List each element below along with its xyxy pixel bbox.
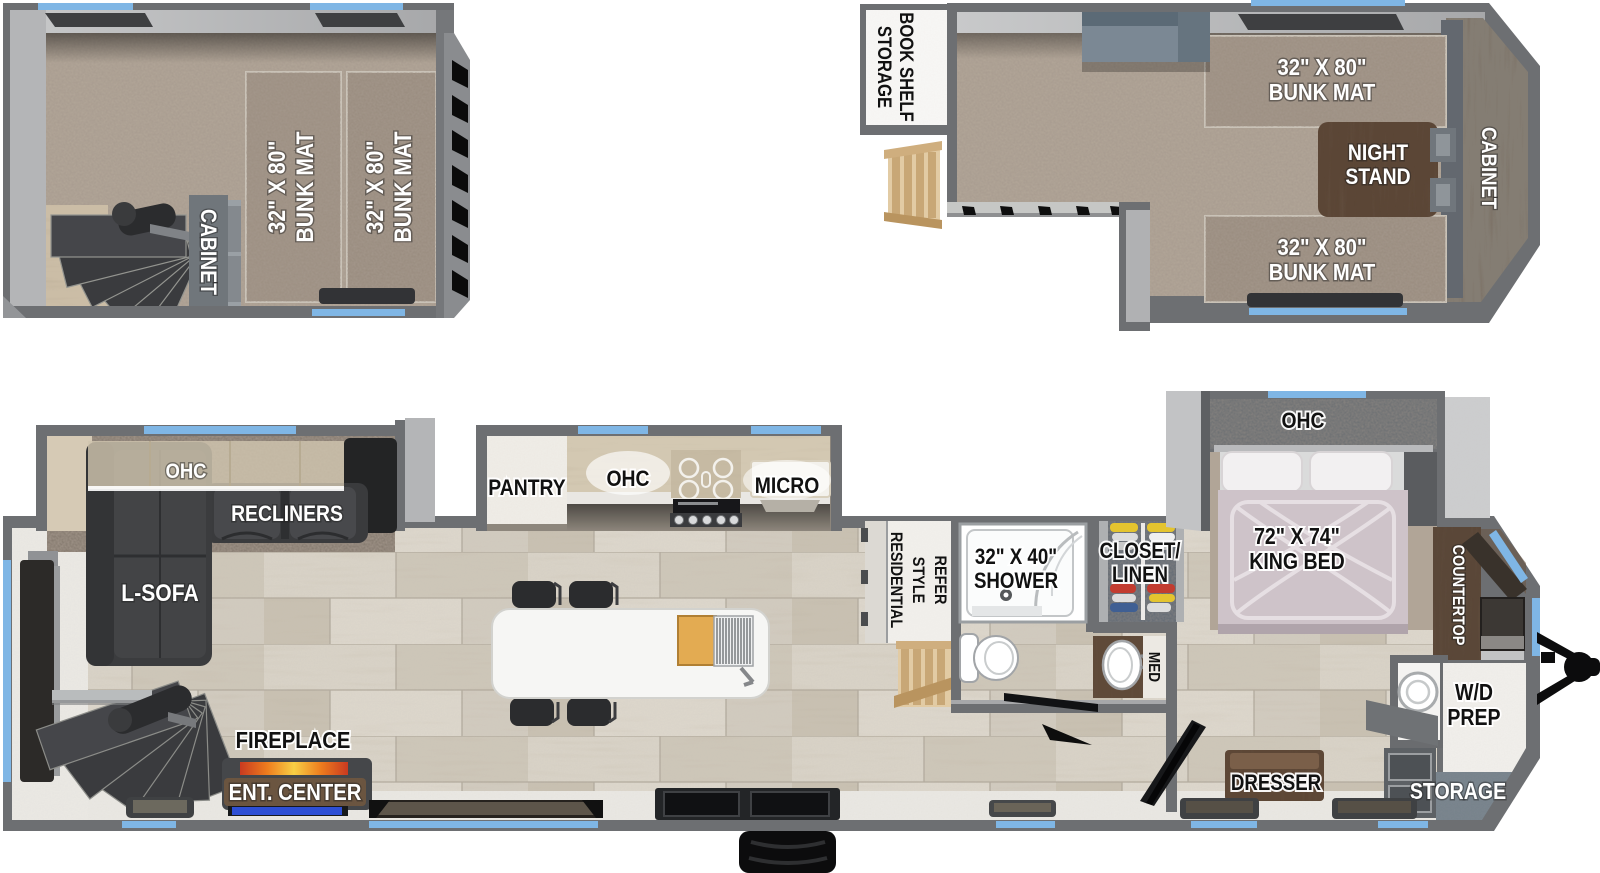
svg-text:SHOWER: SHOWER — [974, 570, 1058, 594]
svg-text:BUNK MAT: BUNK MAT — [1269, 259, 1375, 286]
svg-text:ENT. CENTER: ENT. CENTER — [229, 779, 362, 806]
svg-text:DRESSER: DRESSER — [1231, 772, 1322, 796]
svg-text:CABINET: CABINET — [196, 209, 220, 295]
svg-text:32" X 80": 32" X 80" — [1278, 54, 1367, 81]
svg-text:MED: MED — [1145, 652, 1162, 682]
svg-text:COUNTERTOP: COUNTERTOP — [1449, 545, 1467, 646]
svg-text:CLOSET/: CLOSET/ — [1099, 540, 1180, 564]
svg-text:BOOK SHELF: BOOK SHELF — [896, 12, 917, 122]
svg-text:32" X 80": 32" X 80" — [1278, 234, 1367, 261]
svg-text:FIREPLACE: FIREPLACE — [236, 727, 351, 754]
svg-text:STAND: STAND — [1345, 165, 1410, 189]
svg-text:PREP: PREP — [1447, 705, 1500, 731]
svg-text:72" X 74": 72" X 74" — [1254, 524, 1340, 550]
svg-text:OHC: OHC — [1281, 409, 1324, 433]
svg-text:BUNK MAT: BUNK MAT — [292, 131, 319, 242]
svg-text:KING BED: KING BED — [1249, 549, 1345, 575]
svg-text:STORAGE: STORAGE — [874, 26, 895, 108]
svg-text:MICRO: MICRO — [755, 474, 820, 498]
svg-text:L-SOFA: L-SOFA — [121, 580, 198, 607]
svg-text:32" X 80": 32" X 80" — [362, 141, 389, 234]
svg-text:32" X 80": 32" X 80" — [264, 141, 291, 234]
svg-text:BUNK MAT: BUNK MAT — [390, 131, 417, 242]
svg-text:STYLE: STYLE — [909, 557, 927, 604]
svg-text:RECLINERS: RECLINERS — [231, 502, 343, 526]
svg-text:LINEN: LINEN — [1112, 564, 1168, 588]
svg-text:CABINET: CABINET — [1477, 127, 1500, 209]
svg-text:32" X 40": 32" X 40" — [975, 546, 1057, 570]
svg-text:BUNK MAT: BUNK MAT — [1269, 79, 1375, 106]
svg-text:W/D: W/D — [1455, 680, 1493, 706]
svg-text:OHC: OHC — [165, 460, 206, 483]
svg-text:PANTRY: PANTRY — [488, 476, 566, 500]
svg-text:NIGHT: NIGHT — [1348, 141, 1409, 165]
svg-text:REFER: REFER — [931, 556, 949, 606]
svg-text:RESIDENTIAL: RESIDENTIAL — [887, 532, 905, 629]
svg-text:OHC: OHC — [606, 467, 649, 491]
svg-text:STORAGE: STORAGE — [1410, 779, 1506, 805]
